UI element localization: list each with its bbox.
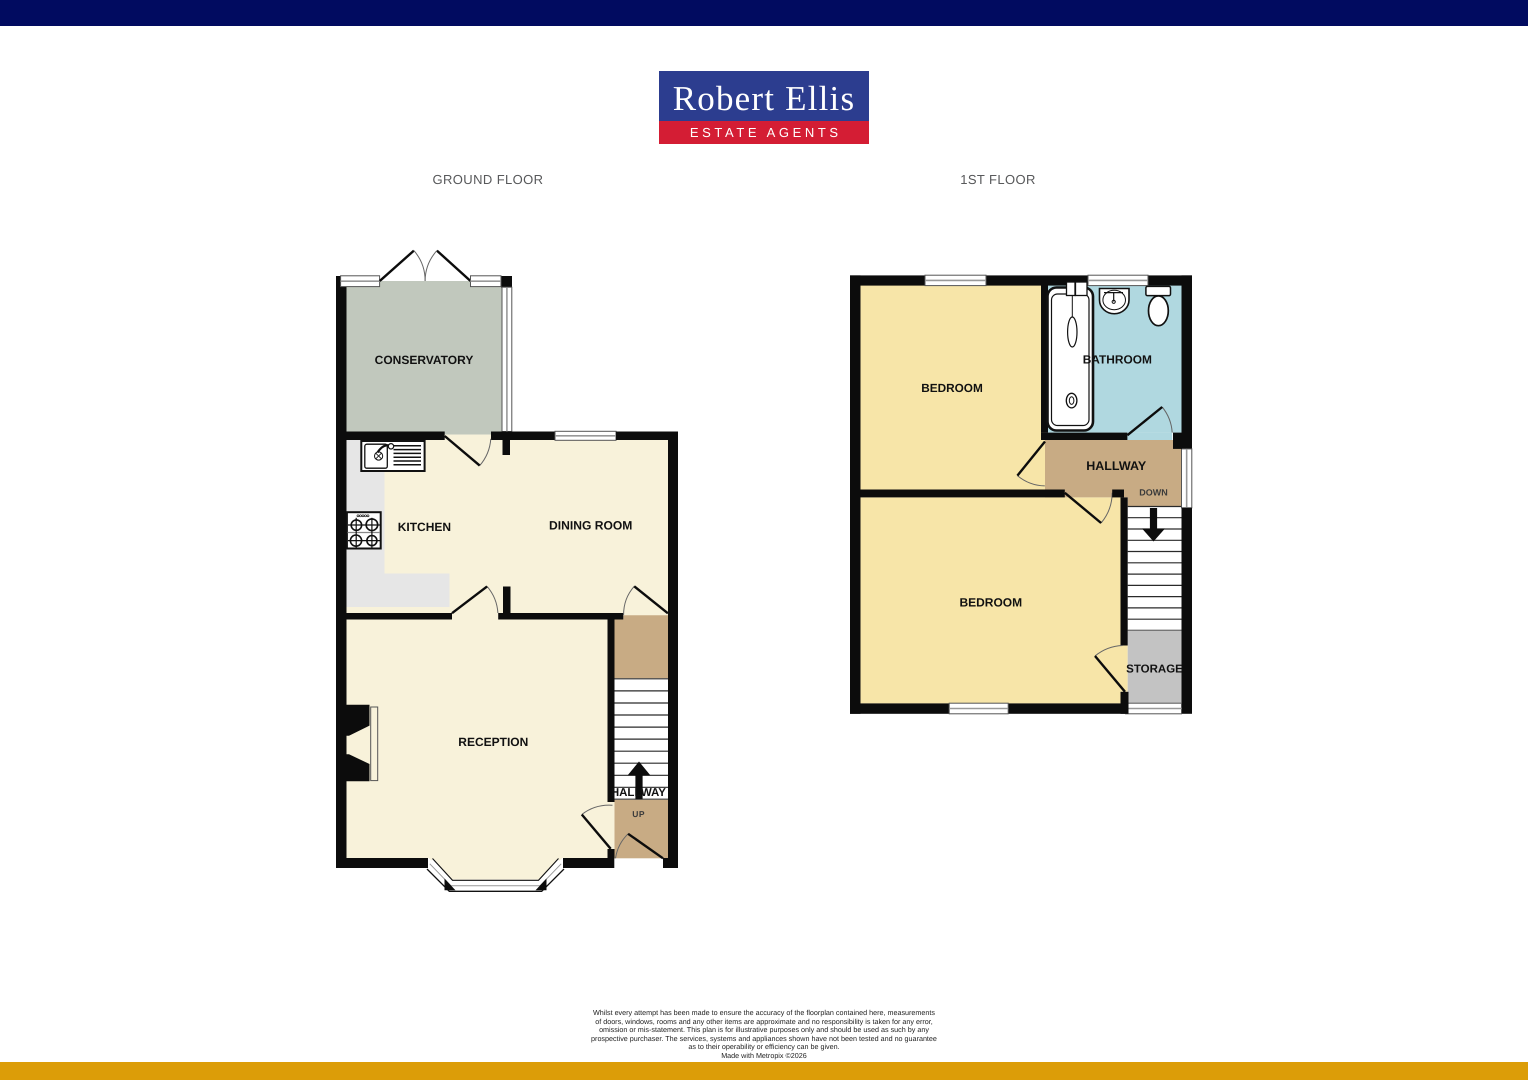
- svg-text:UP: UP: [632, 809, 645, 819]
- svg-text:KITCHEN: KITCHEN: [398, 520, 451, 534]
- svg-text:DOWN: DOWN: [1139, 488, 1168, 498]
- svg-text:CONSERVATORY: CONSERVATORY: [375, 353, 474, 367]
- svg-text:HALLWAY: HALLWAY: [1086, 459, 1147, 473]
- svg-text:RECEPTION: RECEPTION: [458, 735, 528, 749]
- svg-text:STORAGE: STORAGE: [1126, 663, 1183, 675]
- svg-text:BEDROOM: BEDROOM: [921, 381, 983, 395]
- svg-text:BATHROOM: BATHROOM: [1083, 353, 1152, 367]
- svg-text:DINING ROOM: DINING ROOM: [549, 519, 632, 533]
- svg-text:HALLWAY: HALLWAY: [611, 787, 666, 799]
- svg-text:BEDROOM: BEDROOM: [959, 596, 1022, 610]
